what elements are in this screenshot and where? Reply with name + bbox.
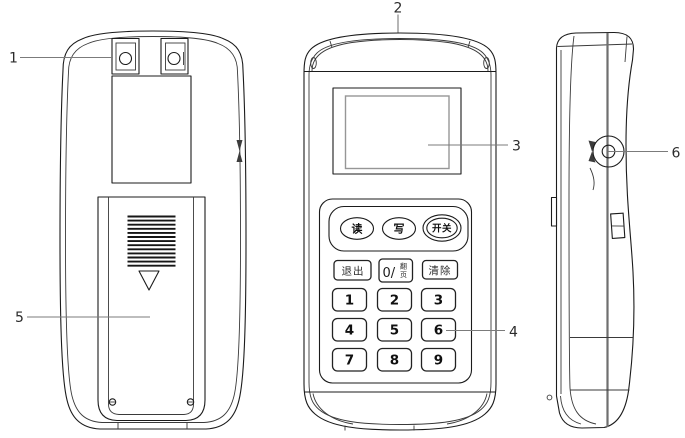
key-9: 9: [422, 349, 456, 372]
side-clip-tab: [611, 213, 625, 238]
key-zero-label: 0/: [383, 266, 396, 281]
front-shoulder-arc: [312, 40, 488, 72]
callout-3-label: 3: [512, 139, 521, 155]
callout-1-label: 1: [9, 51, 18, 67]
callout-4-label: 4: [509, 325, 518, 341]
key-exit: 退出: [334, 261, 371, 281]
power-button: 开关: [423, 215, 461, 241]
side-slot: [552, 198, 557, 227]
three-view-device-drawing: 读 写 开关 退出 0/ 翻 页 清除 1: [0, 0, 685, 438]
key-6: 6: [422, 319, 456, 342]
key-5: 5: [378, 319, 412, 342]
key-4: 4: [333, 319, 367, 342]
svg-text:1: 1: [345, 293, 354, 309]
back-view: [60, 31, 246, 429]
read-button: 读: [341, 218, 374, 240]
back-label-window: [112, 76, 191, 183]
callout-2-label: 2: [394, 1, 403, 17]
key-exit-label: 退出: [342, 265, 365, 278]
read-button-label: 读: [352, 222, 363, 236]
battery-cover: [98, 197, 205, 421]
key-zero-page: 0/ 翻 页: [379, 259, 413, 282]
cover-screw-left: [109, 399, 115, 405]
diagram-canvas: 读 写 开关 退出 0/ 翻 页 清除 1: [0, 0, 685, 438]
key-3: 3: [422, 289, 456, 312]
power-button-label: 开关: [432, 223, 452, 235]
svg-text:5: 5: [390, 323, 399, 339]
battery-grille: [128, 217, 176, 266]
key-8: 8: [378, 349, 412, 372]
svg-text:6: 6: [434, 323, 443, 339]
side-bottom-screw: [547, 395, 552, 400]
back-body-outline: [60, 31, 246, 429]
top-module-right: [161, 39, 188, 75]
svg-text:8: 8: [390, 353, 399, 369]
side-body-outline: [557, 33, 634, 429]
cover-screw-right: [187, 399, 193, 405]
key-page-label-bottom: 页: [400, 271, 407, 279]
write-button: 写: [383, 218, 416, 240]
key-page-label-top: 翻: [400, 262, 407, 271]
key-1: 1: [333, 289, 367, 312]
key-clear: 清除: [423, 261, 458, 280]
screen-bezel: [333, 88, 461, 174]
side-bezel-contour: [569, 36, 596, 424]
front-view: 读 写 开关 退出 0/ 翻 页 清除 1: [304, 33, 496, 431]
write-button-label: 写: [394, 223, 405, 236]
key-7: 7: [333, 349, 367, 372]
svg-text:2: 2: [390, 293, 399, 309]
top-module-left: [112, 39, 139, 75]
svg-text:7: 7: [345, 353, 354, 369]
callout-6-label: 6: [672, 146, 681, 162]
key-2: 2: [378, 289, 412, 312]
lcd-screen: [346, 96, 450, 169]
callout-5-label: 5: [15, 310, 24, 326]
slide-arrow-icon: [139, 271, 159, 290]
svg-text:3: 3: [434, 293, 443, 309]
svg-text:4: 4: [345, 323, 354, 339]
side-view: [547, 33, 634, 429]
svg-text:9: 9: [434, 353, 443, 369]
belt-clip-mark: [237, 140, 243, 162]
key-clear-label: 清除: [429, 264, 452, 277]
